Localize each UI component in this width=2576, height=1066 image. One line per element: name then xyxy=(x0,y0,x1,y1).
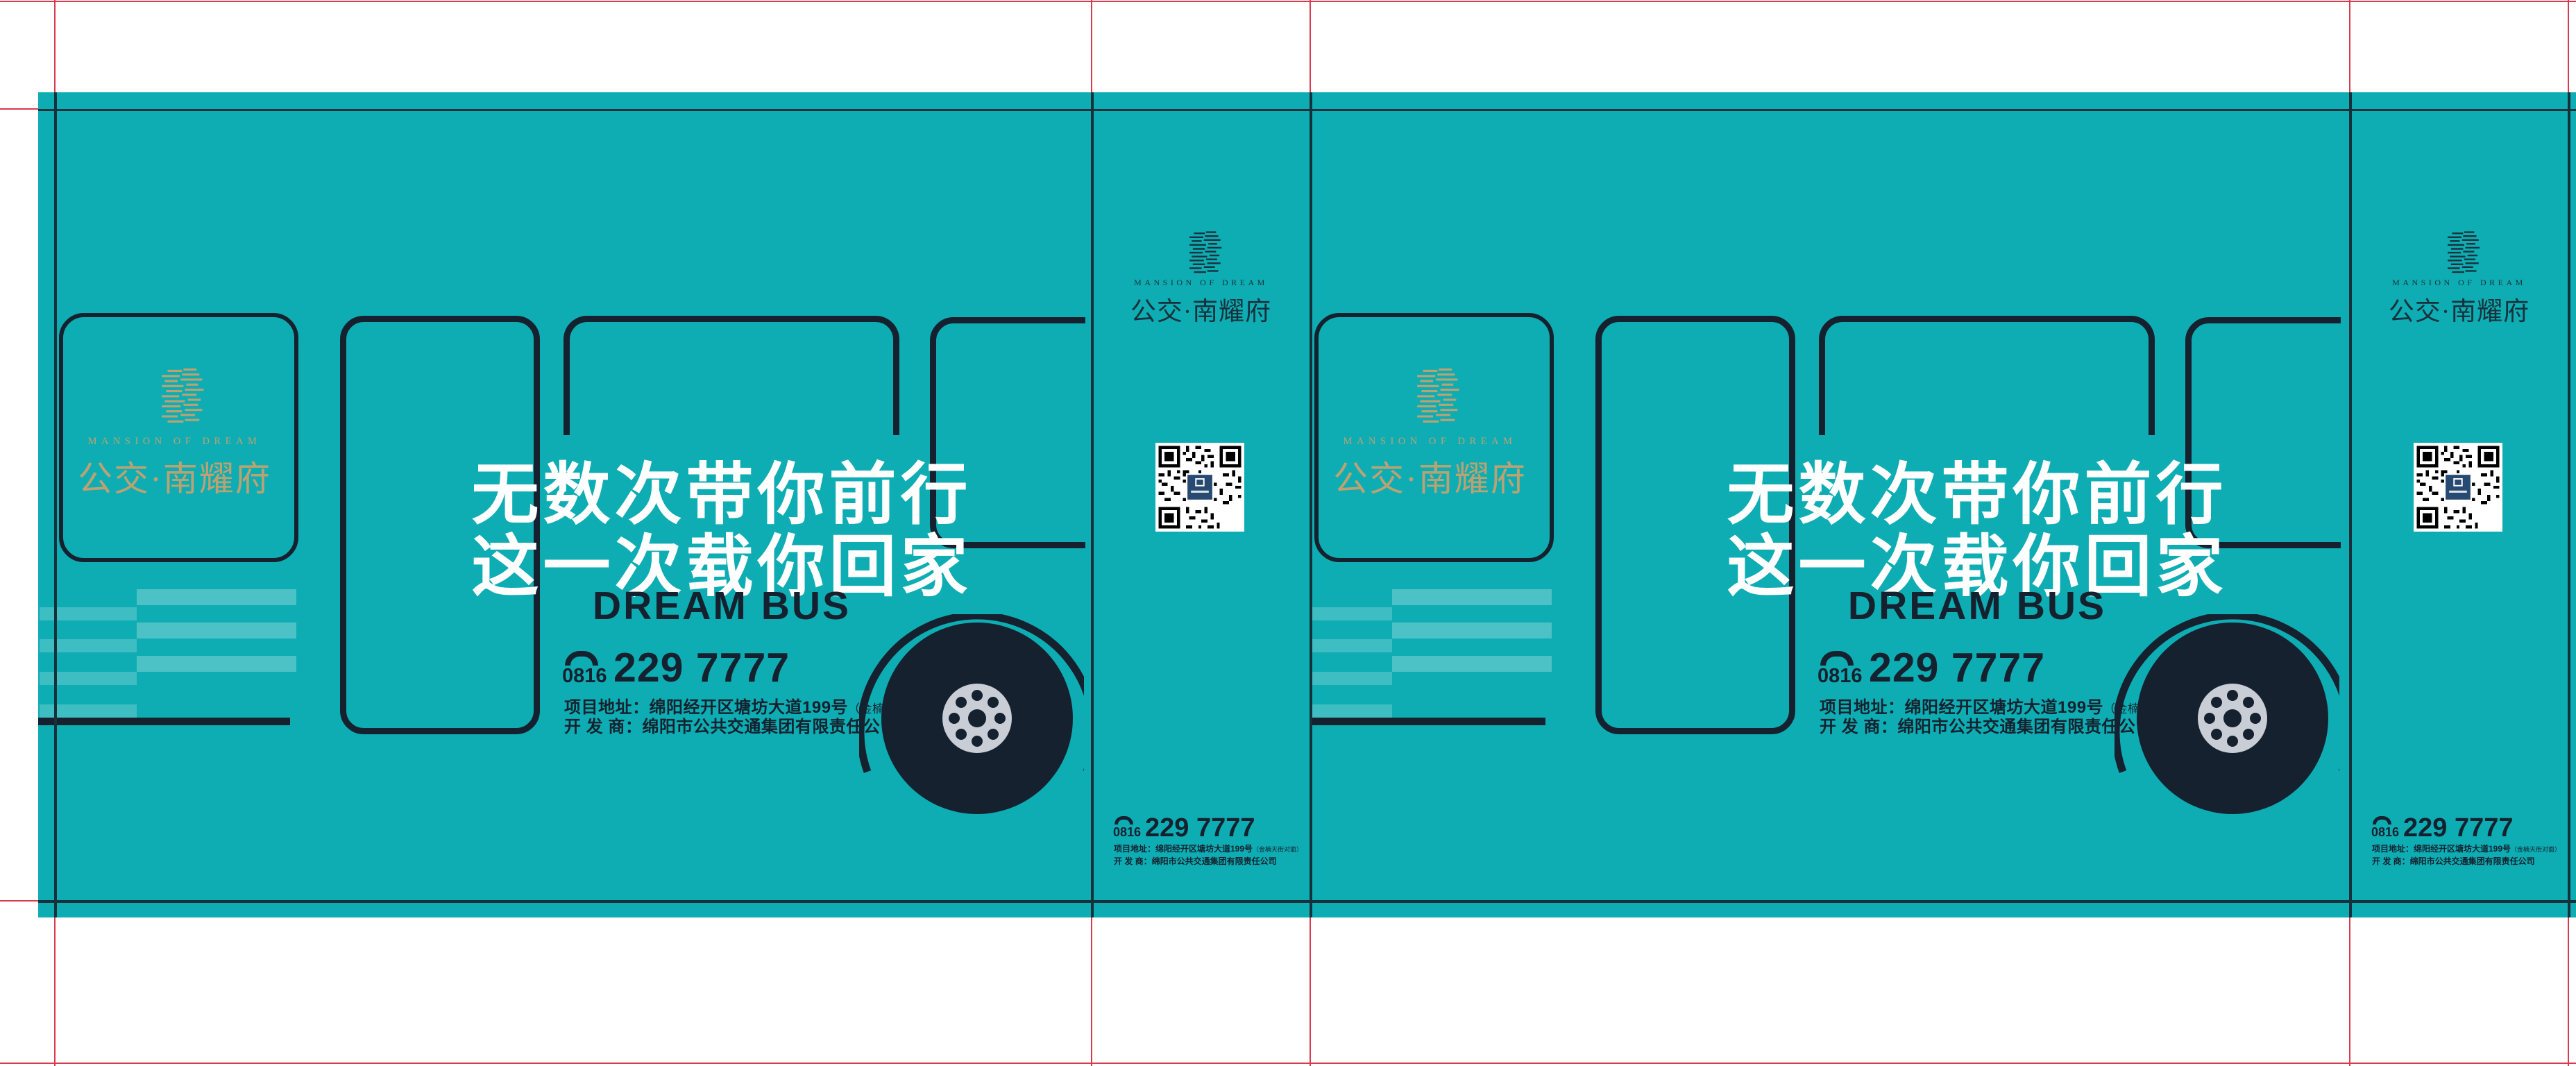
developer-line: 开 发 商：绵阳市公共交通集团有限责任公司 xyxy=(564,713,897,737)
trim-line-v4 xyxy=(2349,92,2352,917)
vent-stripe xyxy=(1310,704,1392,718)
phone-icon xyxy=(1115,816,1133,824)
brand-name-en: MANSION OF DREAM xyxy=(59,436,290,448)
bus-body-line xyxy=(38,718,290,725)
phone-area-code: 0816 xyxy=(1817,665,1863,688)
phone-area-code: 0816 xyxy=(1113,825,1141,840)
vent-stripe xyxy=(1310,639,1392,652)
building-mark-icon xyxy=(140,368,212,429)
building-mark-icon xyxy=(1396,368,1468,429)
address-note: （金楠天街对面） xyxy=(2511,846,2561,853)
vent-stripe xyxy=(137,656,296,672)
trim-line-v5 xyxy=(2568,92,2570,917)
trim-line-bottom xyxy=(38,900,2576,903)
developer-line: 开 发 商：绵阳市公共交通集团有限责任公司 xyxy=(1114,855,1277,867)
vent-stripe xyxy=(1392,656,1552,672)
phone-number: 229 7777 xyxy=(2403,813,2514,843)
brand-name-en: MANSION OF DREAM xyxy=(1314,436,1545,448)
vent-stripe xyxy=(137,623,296,638)
developer-line: 开 发 商：绵阳市公共交通集团有限责任公司 xyxy=(2372,855,2535,867)
brand-name-zh: 公交·南耀府 xyxy=(1314,451,1545,501)
qr-code xyxy=(2414,443,2502,532)
phone-area-code: 0816 xyxy=(2371,825,2399,840)
phone-number: 229 7777 xyxy=(1869,644,2045,691)
bus-window-outline xyxy=(563,316,899,435)
print-proof-artboard: MANSION OF DREAM 公交·南耀府 无数次带你前行 这一次载你回家 … xyxy=(0,0,2576,1066)
phone-icon xyxy=(2373,816,2391,824)
trim-line-v1 xyxy=(54,92,57,917)
address-line: 项目地址：绵阳经开区塘坊大道199号（金楠天街对面） xyxy=(2372,843,2561,854)
vent-stripe xyxy=(1392,623,1552,638)
trim-line-v3 xyxy=(1310,92,1312,917)
brand-name-zh: 公交·南耀府 xyxy=(2350,290,2568,328)
phone-icon xyxy=(1820,651,1854,666)
phone-icon xyxy=(565,651,598,666)
vent-stripe xyxy=(1392,589,1552,605)
building-mark-icon xyxy=(1173,231,1228,278)
phone-number: 229 7777 xyxy=(1145,813,1255,843)
wheel-graphic xyxy=(859,614,1084,829)
vent-stripe xyxy=(1310,607,1392,620)
trim-line-top xyxy=(38,109,2576,111)
vent-stripe xyxy=(137,589,296,605)
vent-stripe xyxy=(1310,672,1392,685)
bus-window-outline xyxy=(1819,316,2155,435)
building-mark-icon xyxy=(2431,231,2486,278)
phone-area-code: 0816 xyxy=(562,665,607,688)
wheel-graphic xyxy=(2115,614,2339,829)
brand-name-zh: 公交·南耀府 xyxy=(59,451,290,501)
trim-line-v2 xyxy=(1091,92,1094,917)
phone-number: 229 7777 xyxy=(613,644,790,691)
brand-name-en: MANSION OF DREAM xyxy=(2350,278,2568,288)
developer-line: 开 发 商：绵阳市公共交通集团有限责任公司 xyxy=(1820,713,2153,737)
qr-code xyxy=(1155,443,1244,532)
bus-front-panel-2: MANSION OF DREAM 公交·南耀府 0816 229 7777 项目… xyxy=(2350,0,2568,1066)
bus-body-line xyxy=(1310,718,1545,725)
